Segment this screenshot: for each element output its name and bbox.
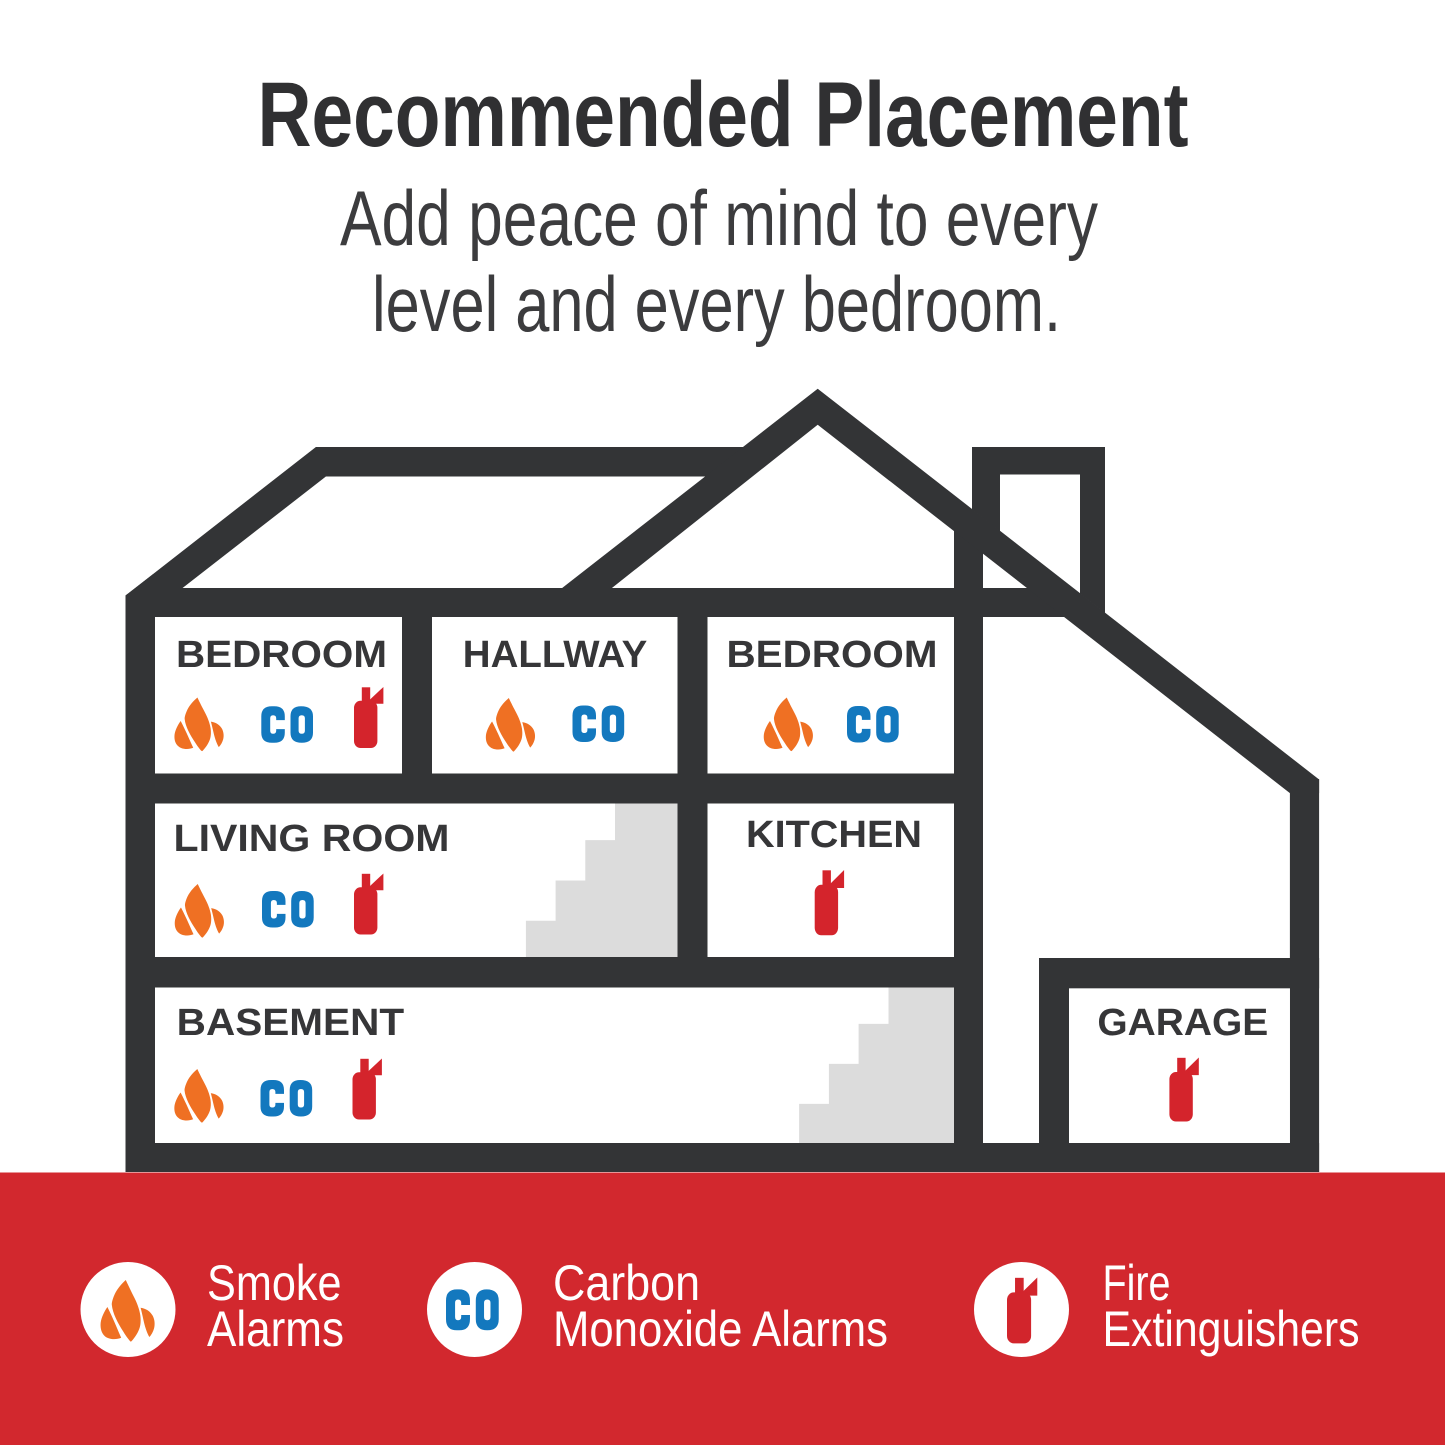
svg-text:BEDROOM: BEDROOM — [176, 634, 387, 676]
svg-text:Extinguishers: Extinguishers — [1103, 1301, 1360, 1357]
svg-text:Monoxide Alarms: Monoxide Alarms — [553, 1301, 888, 1357]
svg-text:Add peace of mind to every: Add peace of mind to every — [340, 174, 1098, 262]
svg-text:BASEMENT: BASEMENT — [177, 1002, 404, 1044]
svg-text:BEDROOM: BEDROOM — [727, 634, 938, 676]
svg-text:Recommended Placement: Recommended Placement — [258, 64, 1189, 166]
svg-text:HALLWAY: HALLWAY — [463, 634, 648, 676]
svg-text:level and every bedroom.: level and every bedroom. — [372, 260, 1061, 348]
svg-text:GARAGE: GARAGE — [1097, 1002, 1268, 1044]
svg-text:Alarms: Alarms — [207, 1301, 344, 1357]
svg-text:LIVING ROOM: LIVING ROOM — [174, 818, 450, 860]
svg-text:KITCHEN: KITCHEN — [746, 814, 922, 856]
